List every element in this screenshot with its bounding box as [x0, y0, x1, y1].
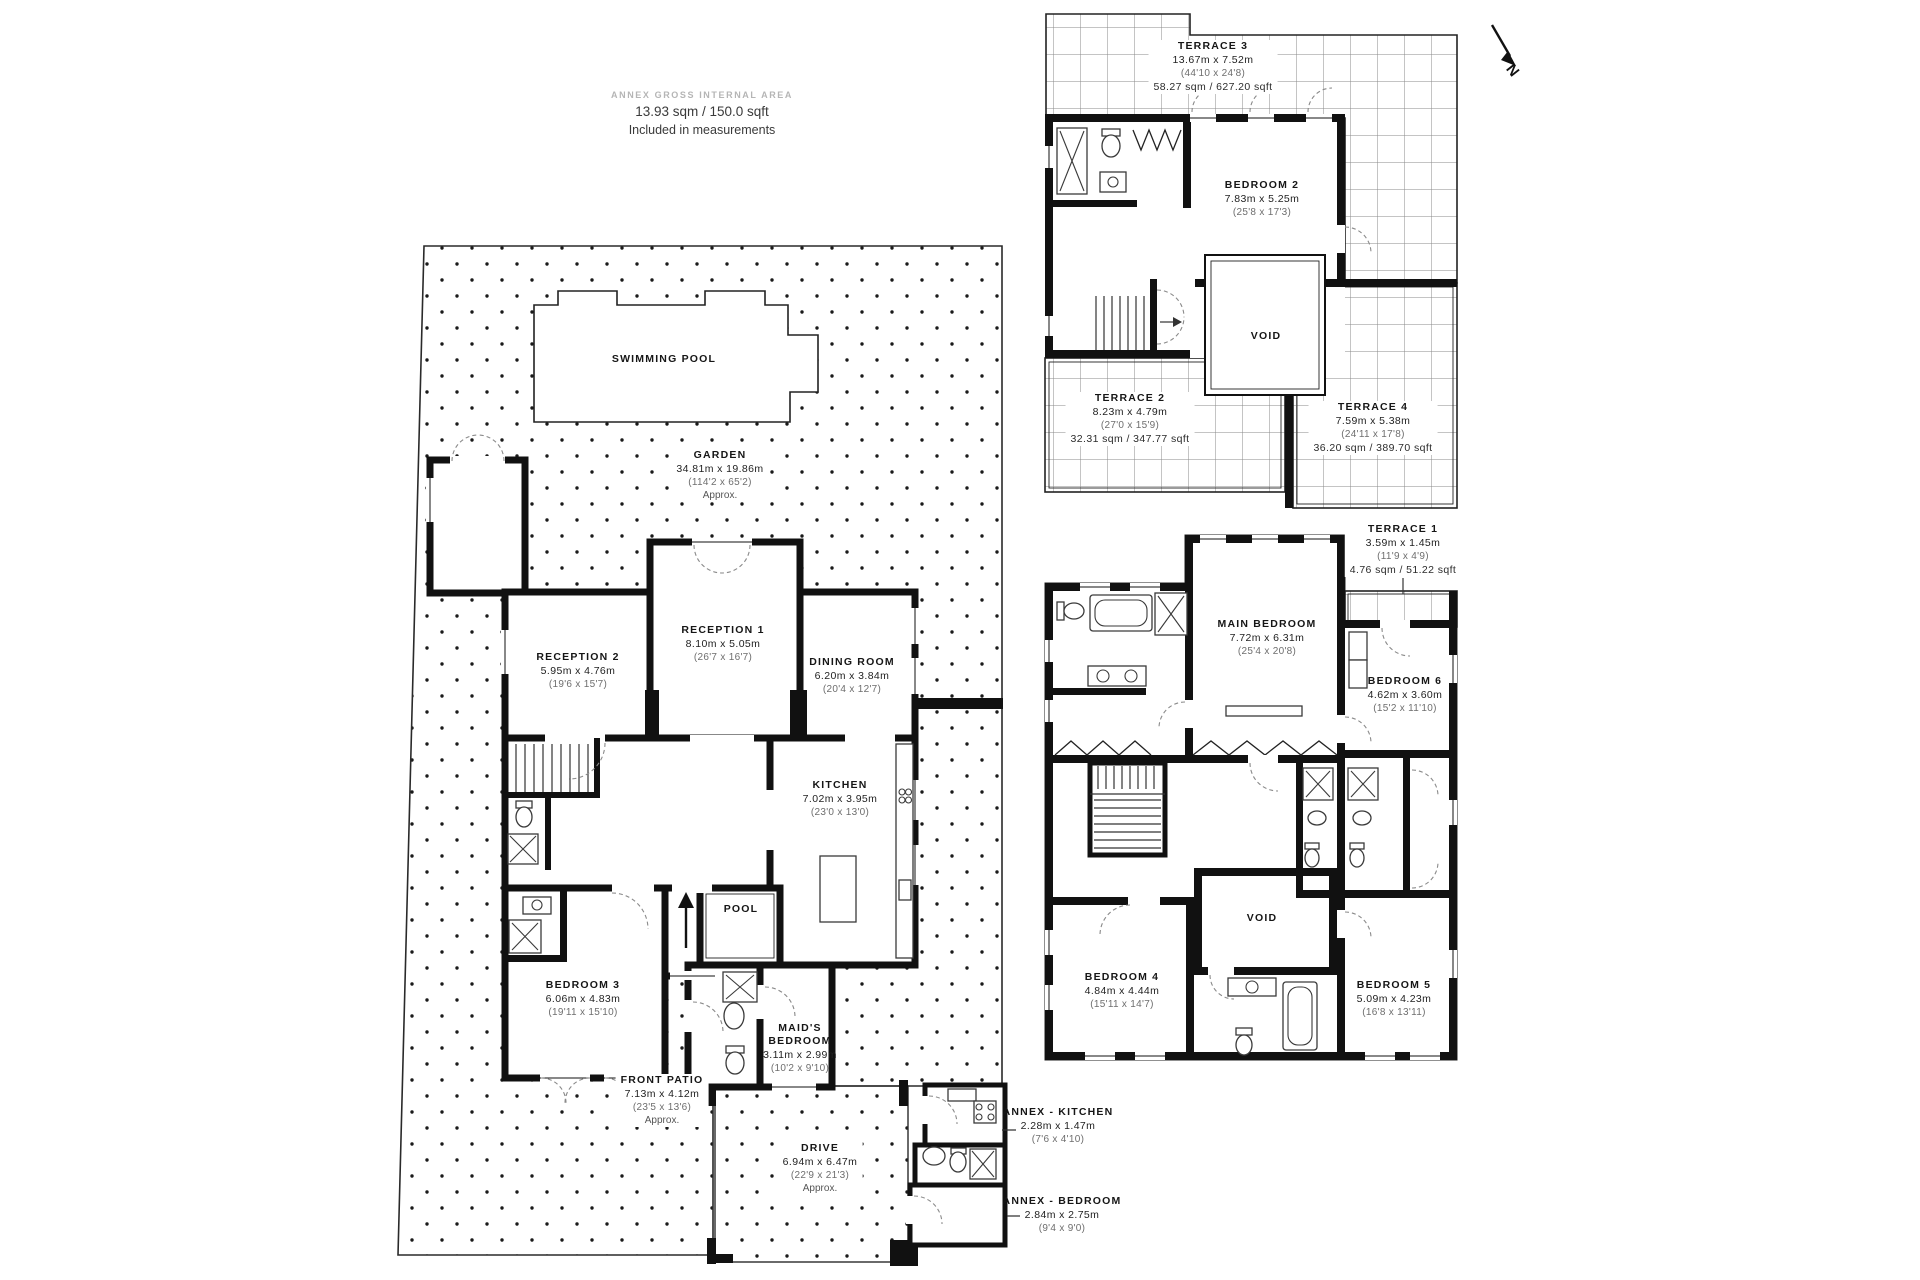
room-label-terrace3: TERRACE 3 13.67m x 7.52m (44'10 x 24'8) … — [1149, 40, 1278, 94]
room-label-void-second-floor: VOID — [1251, 330, 1281, 343]
annex-bedroom-room — [910, 1185, 1005, 1245]
room-dims-ft: (23'0 x 13'0) — [803, 806, 878, 819]
room-dims-ft: (25'4 x 20'8) — [1218, 645, 1317, 658]
room-dims-ft: (44'10 x 24'8) — [1154, 67, 1273, 80]
room-dims-ft: (25'8 x 17'3) — [1225, 206, 1300, 219]
room-dims: 7.72m x 6.31m — [1218, 631, 1317, 645]
room-dims-ft: (7'6 x 4'10) — [1003, 1133, 1114, 1146]
room-dims-ft: (27'0 x 15'9) — [1071, 419, 1190, 432]
room-label-reception1: RECEPTION 1 8.10m x 5.05m (26'7 x 16'7) — [681, 624, 764, 664]
room-kitchen — [770, 738, 915, 965]
room-dims: 7.13m x 4.12m — [621, 1087, 704, 1101]
room-dims: 5.95m x 4.76m — [536, 664, 619, 678]
room-dims: 34.81m x 19.86m — [676, 462, 763, 476]
room-label-reception2: RECEPTION 2 5.95m x 4.76m (19'6 x 15'7) — [536, 651, 619, 691]
room-name: KITCHEN — [803, 779, 878, 792]
room-name: BEDROOM 6 — [1368, 675, 1443, 688]
room-name: GARDEN — [676, 449, 763, 462]
room-dims: 4.62m x 3.60m — [1368, 688, 1443, 702]
room-label-terrace4: TERRACE 4 7.59m x 5.38m (24'11 x 17'8) 3… — [1309, 401, 1438, 455]
room-label-void-first-floor: VOID — [1247, 912, 1277, 925]
room-reception2-bay — [430, 460, 525, 593]
room-dims-ft: (10'2 x 9'10) — [757, 1062, 843, 1075]
room-hall — [505, 738, 770, 888]
room-name: TERRACE 1 — [1350, 523, 1456, 536]
room-name: VOID — [1247, 912, 1277, 925]
room-name: MAID'S BEDROOM — [757, 1022, 843, 1048]
room-name: TERRACE 3 — [1154, 40, 1273, 53]
room-label-bedroom4: BEDROOM 4 4.84m x 4.44m (15'11 x 14'7) — [1085, 971, 1160, 1011]
room-label-drive: DRIVE 6.94m x 6.47m (22'9 x 21'3) Approx… — [778, 1142, 863, 1195]
room-dims-ft: (20'4 x 12'7) — [809, 683, 895, 696]
garden-wall — [915, 698, 1003, 709]
first-floor-stairs — [1090, 763, 1165, 855]
room-note: Approx. — [783, 1182, 858, 1195]
bedroom6-closets — [1349, 632, 1367, 688]
room-label-bedroom5: BEDROOM 5 5.09m x 4.23m (16'8 x 13'11) — [1357, 979, 1432, 1019]
room-name: VOID — [1251, 330, 1281, 343]
pillar — [645, 690, 659, 738]
room-dims-ft: (19'11 x 15'10) — [546, 1006, 621, 1019]
room-name: MAIN BEDROOM — [1218, 618, 1317, 631]
room-indoor-pool — [700, 888, 780, 965]
room-dims: 3.59m x 1.45m — [1350, 536, 1456, 550]
room-dims: 3.11m x 2.99m — [757, 1048, 843, 1062]
room-name: BEDROOM 3 — [546, 979, 621, 992]
room-area: 4.76 sqm / 51.22 sqft — [1350, 563, 1456, 577]
floorplan-drawing — [0, 0, 1920, 1280]
room-dims: 7.83m x 5.25m — [1225, 192, 1300, 206]
room-dims-ft: (23'5 x 13'6) — [621, 1101, 704, 1114]
room-dims: 5.09m x 4.23m — [1357, 992, 1432, 1006]
room-dims: 4.84m x 4.44m — [1085, 984, 1160, 998]
room-dims: 6.94m x 6.47m — [783, 1155, 858, 1169]
room-label-terrace1: TERRACE 1 3.59m x 1.45m (11'9 x 4'9) 4.7… — [1345, 523, 1461, 577]
room-label-dining-room: DINING ROOM 6.20m x 3.84m (20'4 x 12'7) — [809, 656, 895, 696]
room-name: BEDROOM 5 — [1357, 979, 1432, 992]
room-dims: 7.59m x 5.38m — [1314, 414, 1433, 428]
room-note: Approx. — [676, 489, 763, 502]
room-dims-ft: (24'11 x 17'8) — [1314, 428, 1433, 441]
room-dims-ft: (9'4 x 9'0) — [1003, 1222, 1122, 1235]
room-name: FRONT PATIO — [621, 1074, 704, 1087]
room-name: RECEPTION 2 — [536, 651, 619, 664]
room-area: 36.20 sqm / 389.70 sqft — [1314, 441, 1433, 455]
room-dims-ft: (114'2 x 65'2) — [676, 476, 763, 489]
room-name: ANNEX - KITCHEN — [1003, 1106, 1114, 1119]
room-label-kitchen: KITCHEN 7.02m x 3.95m (23'0 x 13'0) — [803, 779, 878, 819]
room-dims: 7.02m x 3.95m — [803, 792, 878, 806]
room-dims: 2.84m x 2.75m — [1003, 1208, 1122, 1222]
annex-area-value: 13.93 sqm / 150.0 sqft — [611, 102, 793, 122]
room-label-front-patio: FRONT PATIO 7.13m x 4.12m (23'5 x 13'6) … — [616, 1074, 709, 1127]
north-arrow-icon — [1492, 25, 1516, 66]
room-name: BEDROOM 4 — [1085, 971, 1160, 984]
room-label-annex-bedroom: ANNEX - BEDROOM 2.84m x 2.75m (9'4 x 9'0… — [1003, 1195, 1122, 1235]
room-dims-ft: (15'2 x 11'10) — [1368, 702, 1443, 715]
room-dims: 8.23m x 4.79m — [1071, 405, 1190, 419]
room-label-bedroom2: BEDROOM 2 7.83m x 5.25m (25'8 x 17'3) — [1225, 179, 1300, 219]
pillar — [790, 690, 807, 738]
room-label-pool: POOL — [724, 903, 759, 916]
room-dims: 6.20m x 3.84m — [809, 669, 895, 683]
room-label-terrace2: TERRACE 2 8.23m x 4.79m (27'0 x 15'9) 32… — [1066, 392, 1195, 446]
room-dims-ft: (11'9 x 4'9) — [1350, 550, 1456, 563]
room-dims: 6.06m x 4.83m — [546, 992, 621, 1006]
room-name: RECEPTION 1 — [681, 624, 764, 637]
annex-area-subnote: Included in measurements — [611, 122, 793, 139]
floorplan-page: ANNEX GROSS INTERNAL AREA 13.93 sqm / 15… — [0, 0, 1920, 1280]
room-dims-ft: (26'7 x 16'7) — [681, 651, 764, 664]
annex-area-note: ANNEX GROSS INTERNAL AREA 13.93 sqm / 15… — [611, 88, 793, 139]
room-label-annex-kitchen: ANNEX - KITCHEN 2.28m x 1.47m (7'6 x 4'1… — [1003, 1106, 1114, 1146]
room-label-swimming-pool: SWIMMING POOL — [612, 353, 716, 366]
room-label-maids-bedroom: MAID'S BEDROOM 3.11m x 2.99m (10'2 x 9'1… — [757, 1022, 843, 1075]
room-area: 58.27 sqm / 627.20 sqft — [1154, 80, 1273, 94]
room-area: 32.31 sqm / 347.77 sqft — [1071, 432, 1190, 446]
room-dims-ft: (15'11 x 14'7) — [1085, 998, 1160, 1011]
room-name: ANNEX - BEDROOM — [1003, 1195, 1122, 1208]
room-dims: 8.10m x 5.05m — [681, 637, 764, 651]
annex-area-title: ANNEX GROSS INTERNAL AREA — [611, 88, 793, 102]
main-bedroom-bench — [1226, 706, 1302, 716]
room-name: DRIVE — [783, 1142, 858, 1155]
room-label-bedroom6: BEDROOM 6 4.62m x 3.60m (15'2 x 11'10) — [1368, 675, 1443, 715]
room-dims: 2.28m x 1.47m — [1003, 1119, 1114, 1133]
room-label-garden: GARDEN 34.81m x 19.86m (114'2 x 65'2) Ap… — [671, 449, 768, 502]
room-dims-ft: (19'6 x 15'7) — [536, 678, 619, 691]
room-dims-ft: (16'8 x 13'11) — [1357, 1006, 1432, 1019]
room-name: SWIMMING POOL — [612, 353, 716, 366]
ground-floor-plan — [398, 246, 1020, 1266]
room-dims-ft: (22'9 x 21'3) — [783, 1169, 858, 1182]
room-name: BEDROOM 2 — [1225, 179, 1300, 192]
room-dims: 13.67m x 7.52m — [1154, 53, 1273, 67]
room-note: Approx. — [621, 1114, 704, 1127]
room-name: DINING ROOM — [809, 656, 895, 669]
room-name: POOL — [724, 903, 759, 916]
room-label-bedroom3: BEDROOM 3 6.06m x 4.83m (19'11 x 15'10) — [546, 979, 621, 1019]
room-name: TERRACE 4 — [1314, 401, 1433, 414]
void-room-second-floor — [1205, 255, 1325, 395]
room-label-main-bedroom: MAIN BEDROOM 7.72m x 6.31m (25'4 x 20'8) — [1218, 618, 1317, 658]
room-name: TERRACE 2 — [1071, 392, 1190, 405]
